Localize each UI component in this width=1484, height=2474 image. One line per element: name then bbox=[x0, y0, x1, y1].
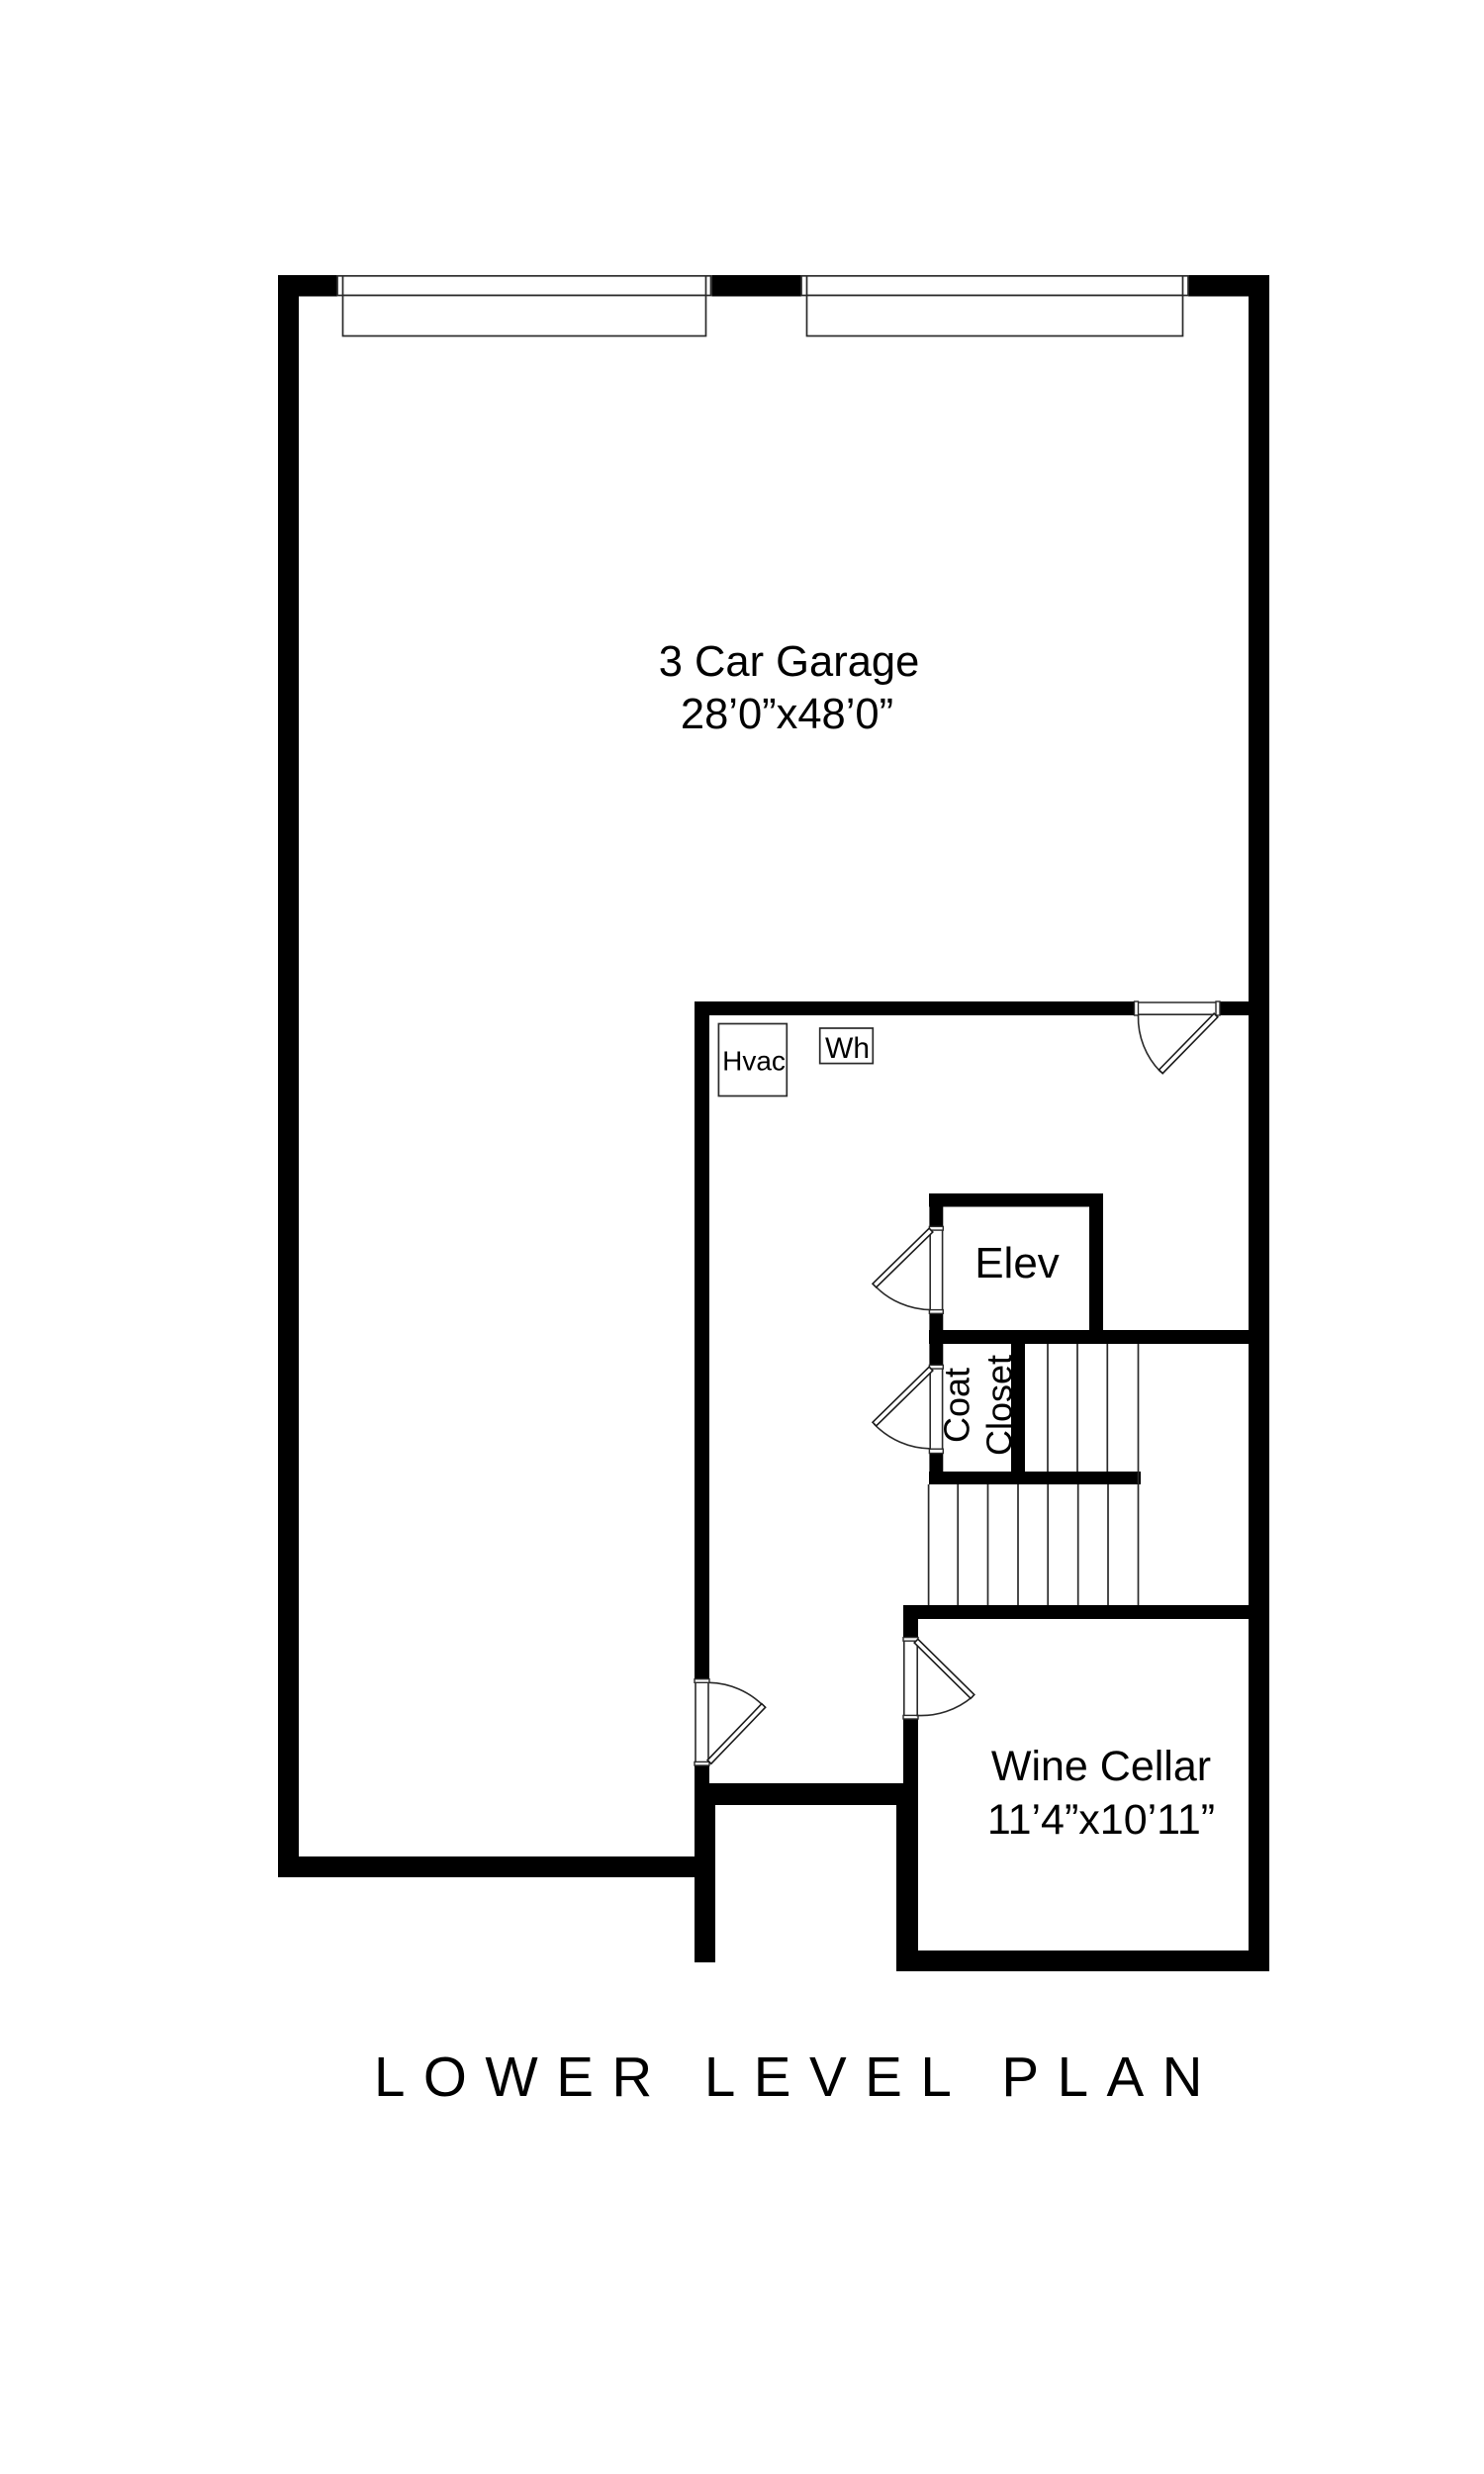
svg-text:28’0”x48’0”: 28’0”x48’0” bbox=[681, 691, 893, 738]
svg-text:3 Car Garage: 3 Car Garage bbox=[659, 638, 920, 686]
svg-text:Hvac: Hvac bbox=[722, 1046, 786, 1077]
svg-text:Wine Cellar: Wine Cellar bbox=[991, 1743, 1211, 1790]
svg-text:Coat: Coat bbox=[937, 1368, 977, 1443]
svg-text:Elev: Elev bbox=[974, 1239, 1060, 1287]
svg-text:Wh: Wh bbox=[825, 1032, 870, 1065]
svg-text:11’4”x10’11”: 11’4”x10’11” bbox=[987, 1796, 1215, 1844]
svg-text:Closet: Closet bbox=[979, 1355, 1020, 1456]
svg-text:LOWER LEVEL PLAN: LOWER LEVEL PLAN bbox=[374, 2046, 1221, 2108]
